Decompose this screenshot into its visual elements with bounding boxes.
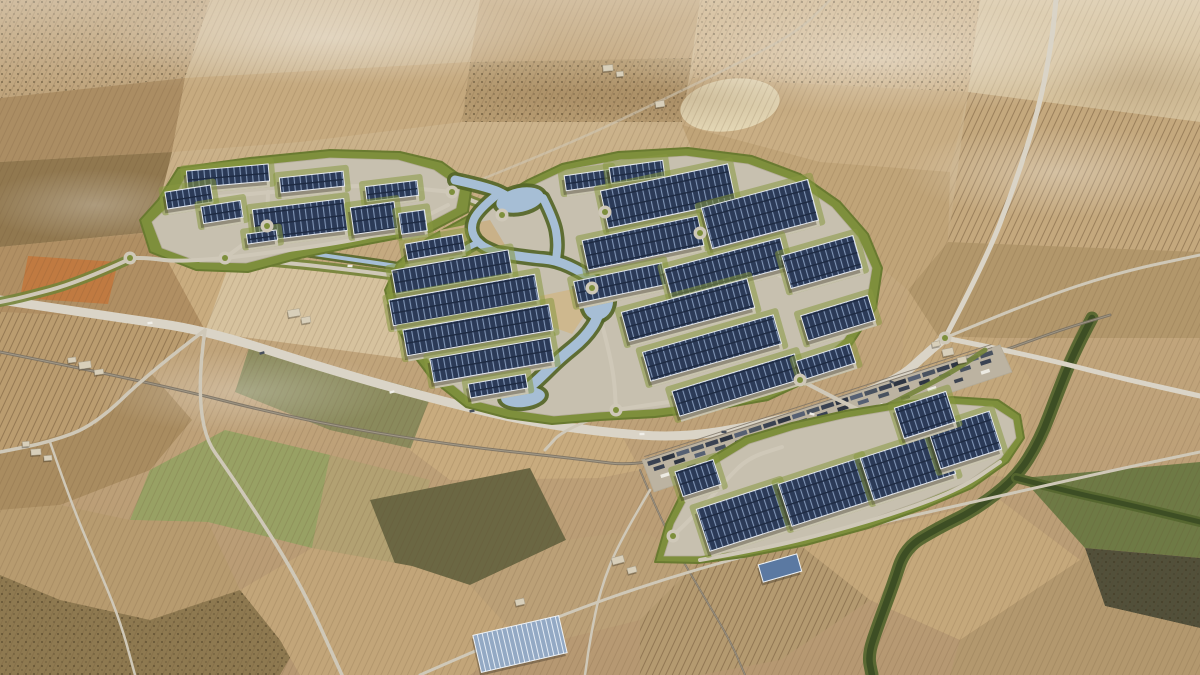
roundabout-island (602, 209, 608, 215)
farm-building (44, 455, 52, 461)
farm-building (22, 441, 29, 446)
roundabout-island (613, 407, 619, 413)
roundabout-island (127, 255, 133, 261)
roundabout-island (449, 189, 455, 195)
roundabout-island (670, 533, 676, 539)
roundabout-island (942, 335, 948, 341)
vehicle (392, 271, 397, 274)
roundabout-island (797, 377, 803, 383)
vehicle (721, 431, 726, 434)
vehicle (347, 265, 352, 268)
farm-building (301, 316, 311, 323)
aerial-render (0, 0, 1200, 675)
roundabout-island (589, 285, 595, 291)
aerial-scene-canvas (0, 0, 1200, 675)
farm-building (94, 369, 104, 375)
farm-building (616, 71, 623, 77)
roundabout-island (499, 212, 505, 218)
horizon-haze (0, 0, 1200, 90)
farm-building (31, 449, 41, 456)
aerial-scene-figure (0, 0, 1200, 675)
roundabout-island (697, 230, 703, 236)
solar-panel-roof (350, 202, 397, 235)
roundabout-island (222, 255, 228, 261)
vehicle (639, 433, 644, 436)
roundabout-island (264, 223, 270, 229)
soil-wash (90, 350, 400, 434)
solar-panel-roof (399, 210, 428, 234)
farm-building (603, 65, 613, 72)
farm-building (655, 100, 665, 107)
farm-building (68, 357, 77, 363)
farm-building (79, 361, 92, 370)
